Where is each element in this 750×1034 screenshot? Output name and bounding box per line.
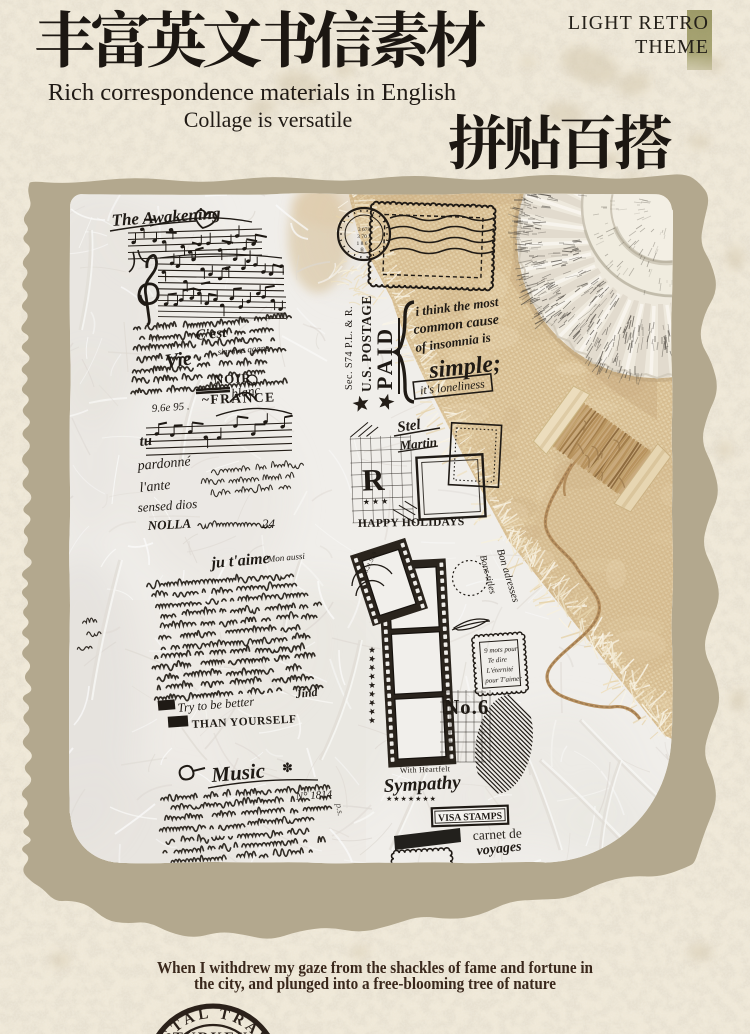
svg-text:NOLLA: NOLLA <box>146 516 191 533</box>
svg-text:LIGHT RETRO: LIGHT RETRO <box>568 12 709 34</box>
svg-text:Rich correspondence materials: Rich correspondence materials in English <box>48 79 456 106</box>
svg-text:Vie: Vie <box>164 347 194 373</box>
svg-text:Te dire: Te dire <box>488 655 508 664</box>
svg-text:PAID: PAID <box>372 326 397 390</box>
svg-text:No.6: No.6 <box>444 695 489 719</box>
svg-text:1 8 6 3: 1 8 6 3 <box>356 241 371 247</box>
svg-text:tu: tu <box>139 433 153 450</box>
svg-text:Sympathy: Sympathy <box>383 772 462 797</box>
svg-text:Sec. S74 P.L. & R.: Sec. S74 P.L. & R. <box>344 306 355 390</box>
svg-text:TURKEY: TURKEY <box>173 1030 249 1034</box>
svg-text:~FRANCE: ~FRANCE <box>202 389 276 407</box>
svg-text:the city, and plunged into a f: the city, and plunged into a free-bloomi… <box>194 974 556 993</box>
svg-text:Jind: Jind <box>294 685 319 701</box>
svg-text:3 70 3: 3 70 3 <box>357 234 371 240</box>
svg-text:®: ® <box>360 247 365 254</box>
svg-text:C'est: C'est <box>195 325 228 344</box>
svg-text:VISA STAMPS: VISA STAMPS <box>438 811 503 824</box>
svg-text:★ ★ ★: ★ ★ ★ <box>363 497 389 507</box>
svg-text:THEME: THEME <box>635 36 709 58</box>
svg-text:24: 24 <box>262 516 276 531</box>
svg-text:★★★★★★★: ★★★★★★★ <box>386 795 437 803</box>
svg-text:✽: ✽ <box>282 760 293 775</box>
svg-text:3 678: 3 678 <box>358 227 371 233</box>
svg-text:Collage is versatile: Collage is versatile <box>184 107 353 132</box>
svg-text:R: R <box>361 462 385 498</box>
